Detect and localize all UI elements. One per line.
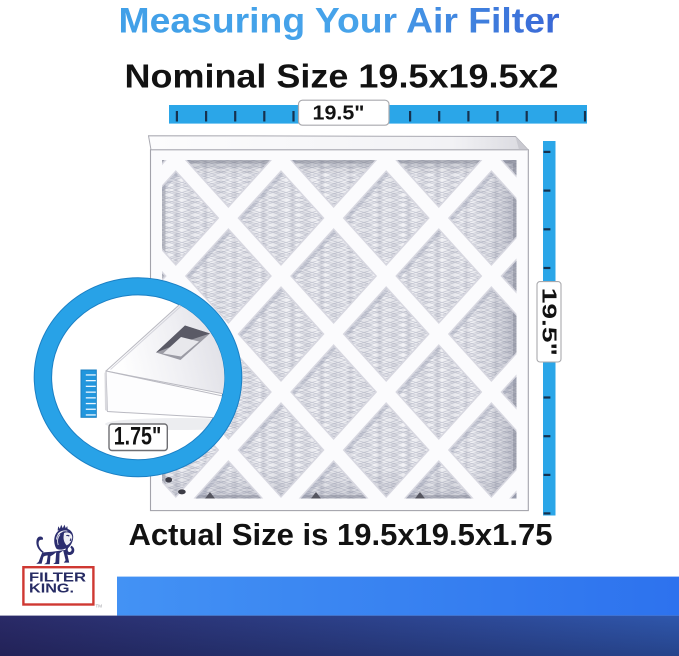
svg-text:TM: TM [96,604,103,609]
svg-text:Actual Size is 19.5x19.5x1.75: Actual Size is 19.5x19.5x1.75 [129,518,553,552]
svg-text:19.5": 19.5" [538,288,560,356]
svg-text:Measuring Your Air Filter: Measuring Your Air Filter [119,1,560,40]
svg-text:19.5": 19.5" [313,103,365,125]
svg-text:1.75": 1.75" [114,422,162,450]
svg-text:KING.: KING. [29,580,74,595]
svg-text:Nominal Size 19.5x19.5x2: Nominal Size 19.5x19.5x2 [125,58,559,95]
